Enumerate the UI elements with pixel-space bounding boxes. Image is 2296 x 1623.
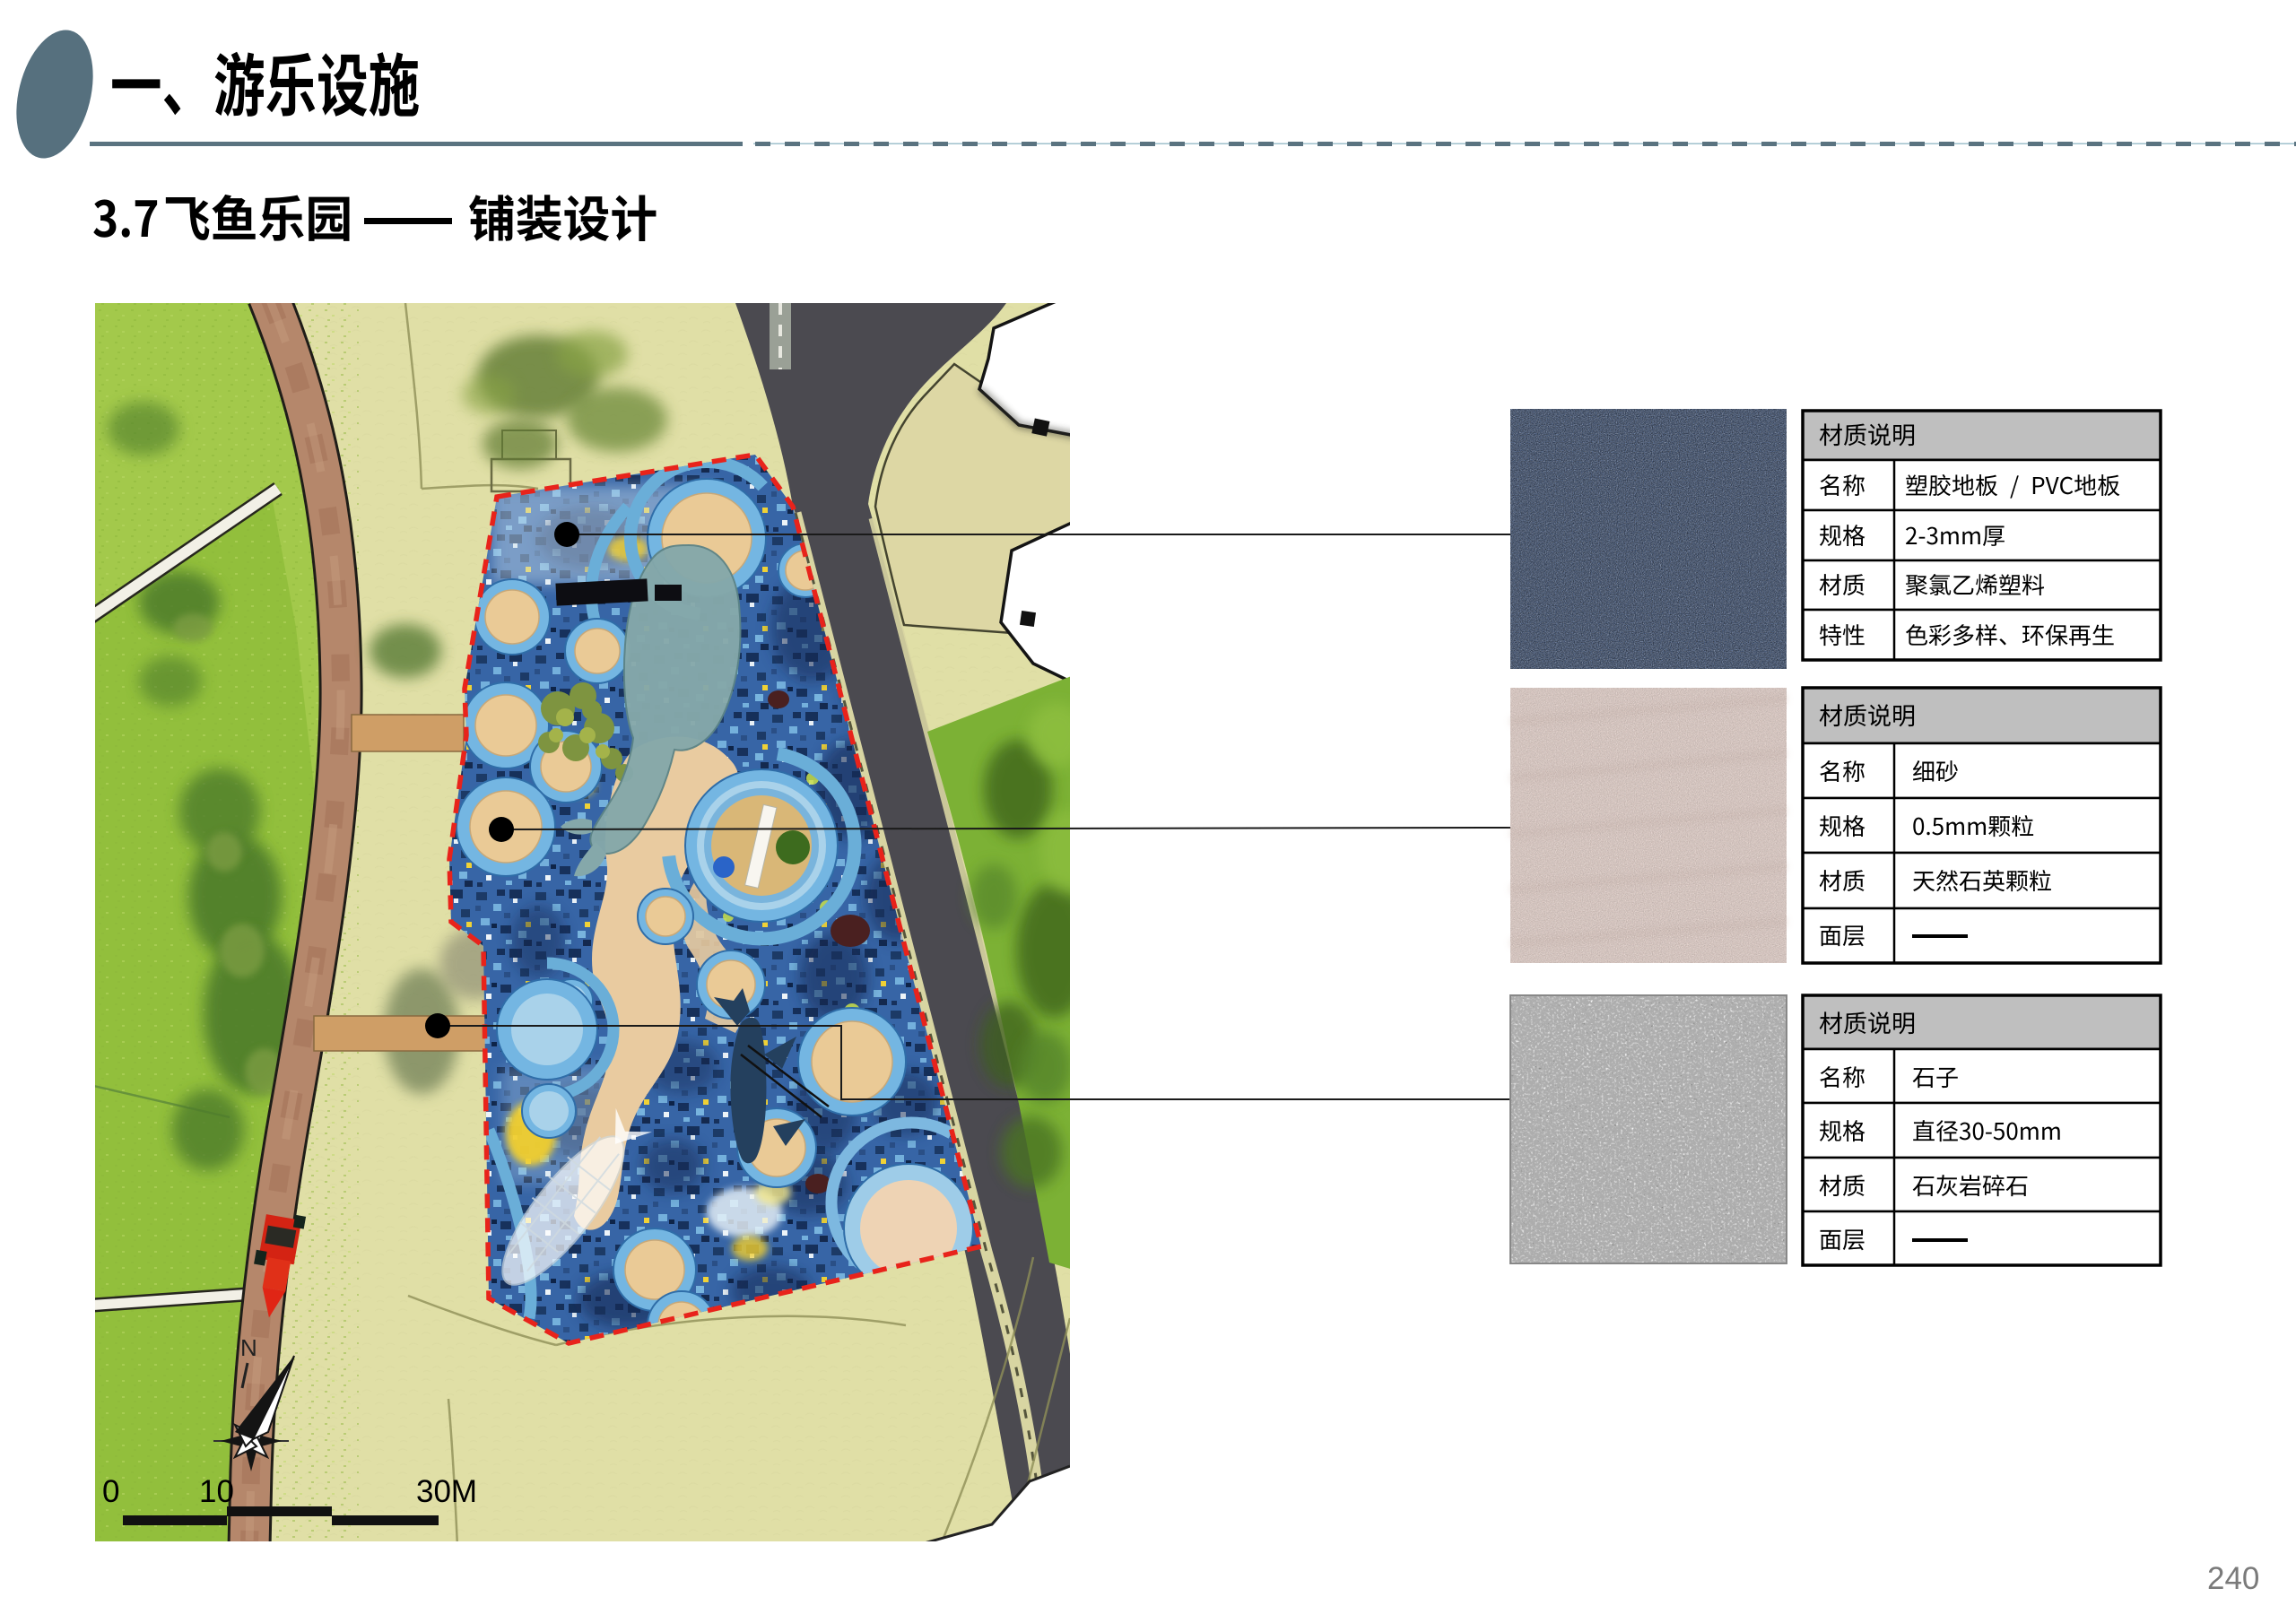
svg-text:30M: 30M (416, 1474, 477, 1509)
svg-text:10: 10 (199, 1474, 234, 1509)
svg-text:N: N (240, 1334, 257, 1361)
svg-text:0: 0 (102, 1474, 119, 1509)
svg-text:240: 240 (2207, 1561, 2259, 1596)
